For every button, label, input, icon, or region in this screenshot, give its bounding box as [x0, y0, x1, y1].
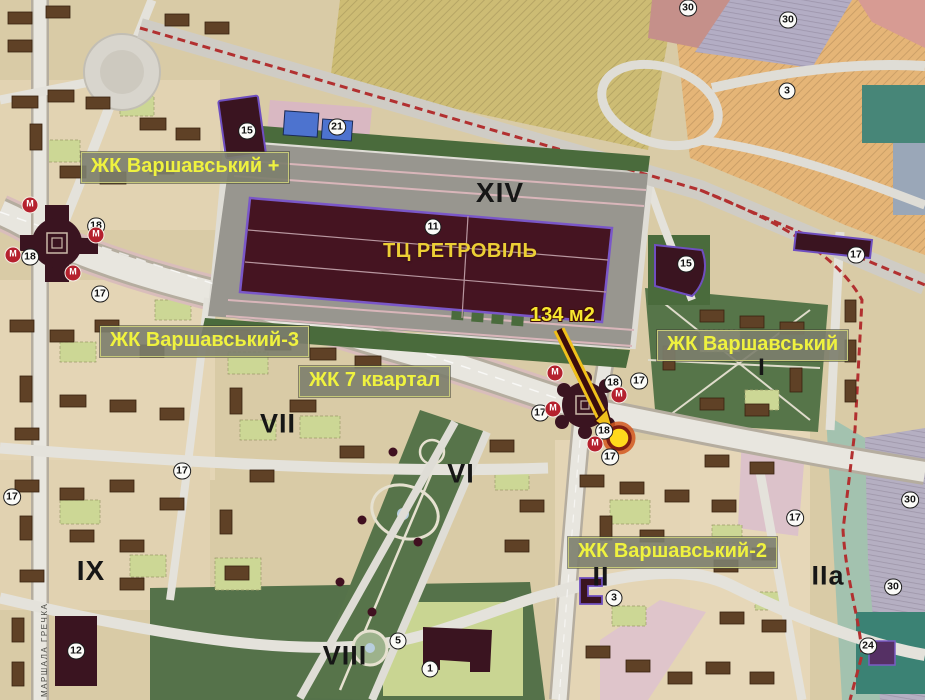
map-badge: 17 — [630, 373, 648, 390]
district-numeral: VIII — [323, 641, 368, 672]
district-numeral: IX — [77, 555, 105, 587]
metro-icon: М — [547, 365, 564, 382]
metro-icon: М — [587, 436, 604, 453]
map-badge: 15 — [677, 256, 695, 273]
map-badge: 18 — [21, 249, 39, 266]
metro-icon: М — [65, 265, 82, 282]
metro-icon: М — [22, 197, 39, 214]
map-badge: 24 — [859, 638, 877, 655]
map-badge: 15 — [238, 123, 256, 140]
map-badge: 17 — [847, 247, 865, 264]
map-badge: 30 — [901, 492, 919, 509]
complex-label: ЖК Варшавський-3 — [100, 326, 309, 357]
district-numeral: VII — [260, 409, 296, 440]
map-badge: 3 — [606, 590, 623, 607]
map-badge: 17 — [601, 449, 619, 466]
district-numeral: IIa — [811, 561, 844, 592]
map-badge: 11 — [424, 219, 441, 236]
city-map: ЖК Варшавський +ЖК Варшавський-3ЖК 7 ква… — [0, 0, 925, 700]
area-size-label: 134 м2 — [530, 304, 595, 327]
map-badge: 12 — [67, 643, 85, 660]
map-badge: 5 — [390, 633, 407, 650]
map-badge: 17 — [91, 286, 109, 303]
district-numeral: II — [592, 562, 609, 593]
map-badge: 1 — [422, 661, 439, 678]
metro-icon: М — [545, 401, 562, 418]
map-badge: 21 — [328, 119, 346, 136]
metro-icon: М — [5, 247, 22, 264]
district-numeral: I — [758, 354, 766, 382]
mall-label: ТЦ РЕТРОВІЛЬ — [383, 240, 537, 263]
map-annotations: ЖК Варшавський +ЖК Варшавський-3ЖК 7 ква… — [0, 0, 925, 700]
complex-label: ЖК Варшавський + — [81, 152, 289, 183]
metro-icon: М — [611, 387, 628, 404]
street-name-label: МАРШАЛА ГРЕЧКА — [40, 603, 49, 697]
map-badge: 30 — [884, 579, 902, 596]
district-numeral: XIV — [476, 177, 524, 209]
complex-label: ЖК 7 квартал — [299, 366, 450, 397]
district-numeral: VI — [447, 459, 475, 490]
map-badge: 30 — [679, 0, 697, 17]
map-badge: 3 — [779, 83, 796, 100]
complex-label: ЖК Варшавський — [657, 330, 848, 361]
map-badge: 30 — [779, 12, 797, 29]
map-badge: 17 — [173, 463, 191, 480]
metro-icon: М — [88, 227, 105, 244]
map-badge: 17 — [3, 489, 21, 506]
map-badge: 17 — [786, 510, 804, 527]
